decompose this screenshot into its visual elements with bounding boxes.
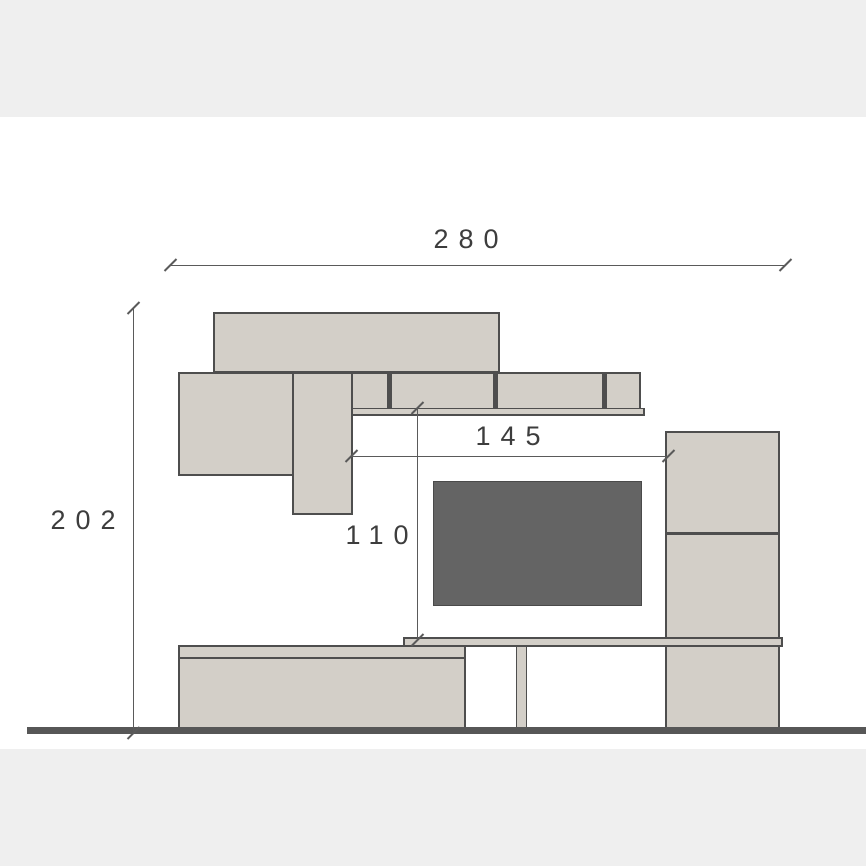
- floor-line: [27, 727, 866, 734]
- right-tall-cabinet: [665, 431, 780, 729]
- furniture-elevation-drawing: 280 202 145 110: [0, 0, 866, 866]
- shelf-row: [351, 372, 641, 410]
- right-cabinet-divider: [667, 532, 778, 535]
- shelf-divider: [387, 374, 392, 408]
- bench-cabinet: [178, 645, 466, 729]
- dim-label-overall-width: 280: [391, 224, 551, 255]
- dim-line-overall-width: [170, 265, 785, 266]
- table-leg: [516, 646, 527, 728]
- dim-label-middle-width: 145: [433, 421, 593, 452]
- bench-lid-line: [180, 657, 464, 659]
- shelf-divider: [493, 374, 498, 408]
- dim-line-middle-width: [352, 456, 668, 457]
- top-background-band: [0, 0, 866, 117]
- tabletop-shelf: [403, 637, 783, 647]
- dim-label-middle-height: 110: [302, 520, 462, 551]
- dim-label-overall-height: 202: [28, 505, 148, 536]
- vertical-column-cabinet: [292, 372, 353, 515]
- shelf-bottom-plank: [351, 408, 645, 416]
- top-wall-cabinet: [213, 312, 500, 373]
- shelf-divider: [602, 374, 607, 408]
- tv-screen: [433, 481, 642, 606]
- bottom-background-band: [0, 749, 866, 866]
- left-wall-cabinet: [178, 372, 294, 476]
